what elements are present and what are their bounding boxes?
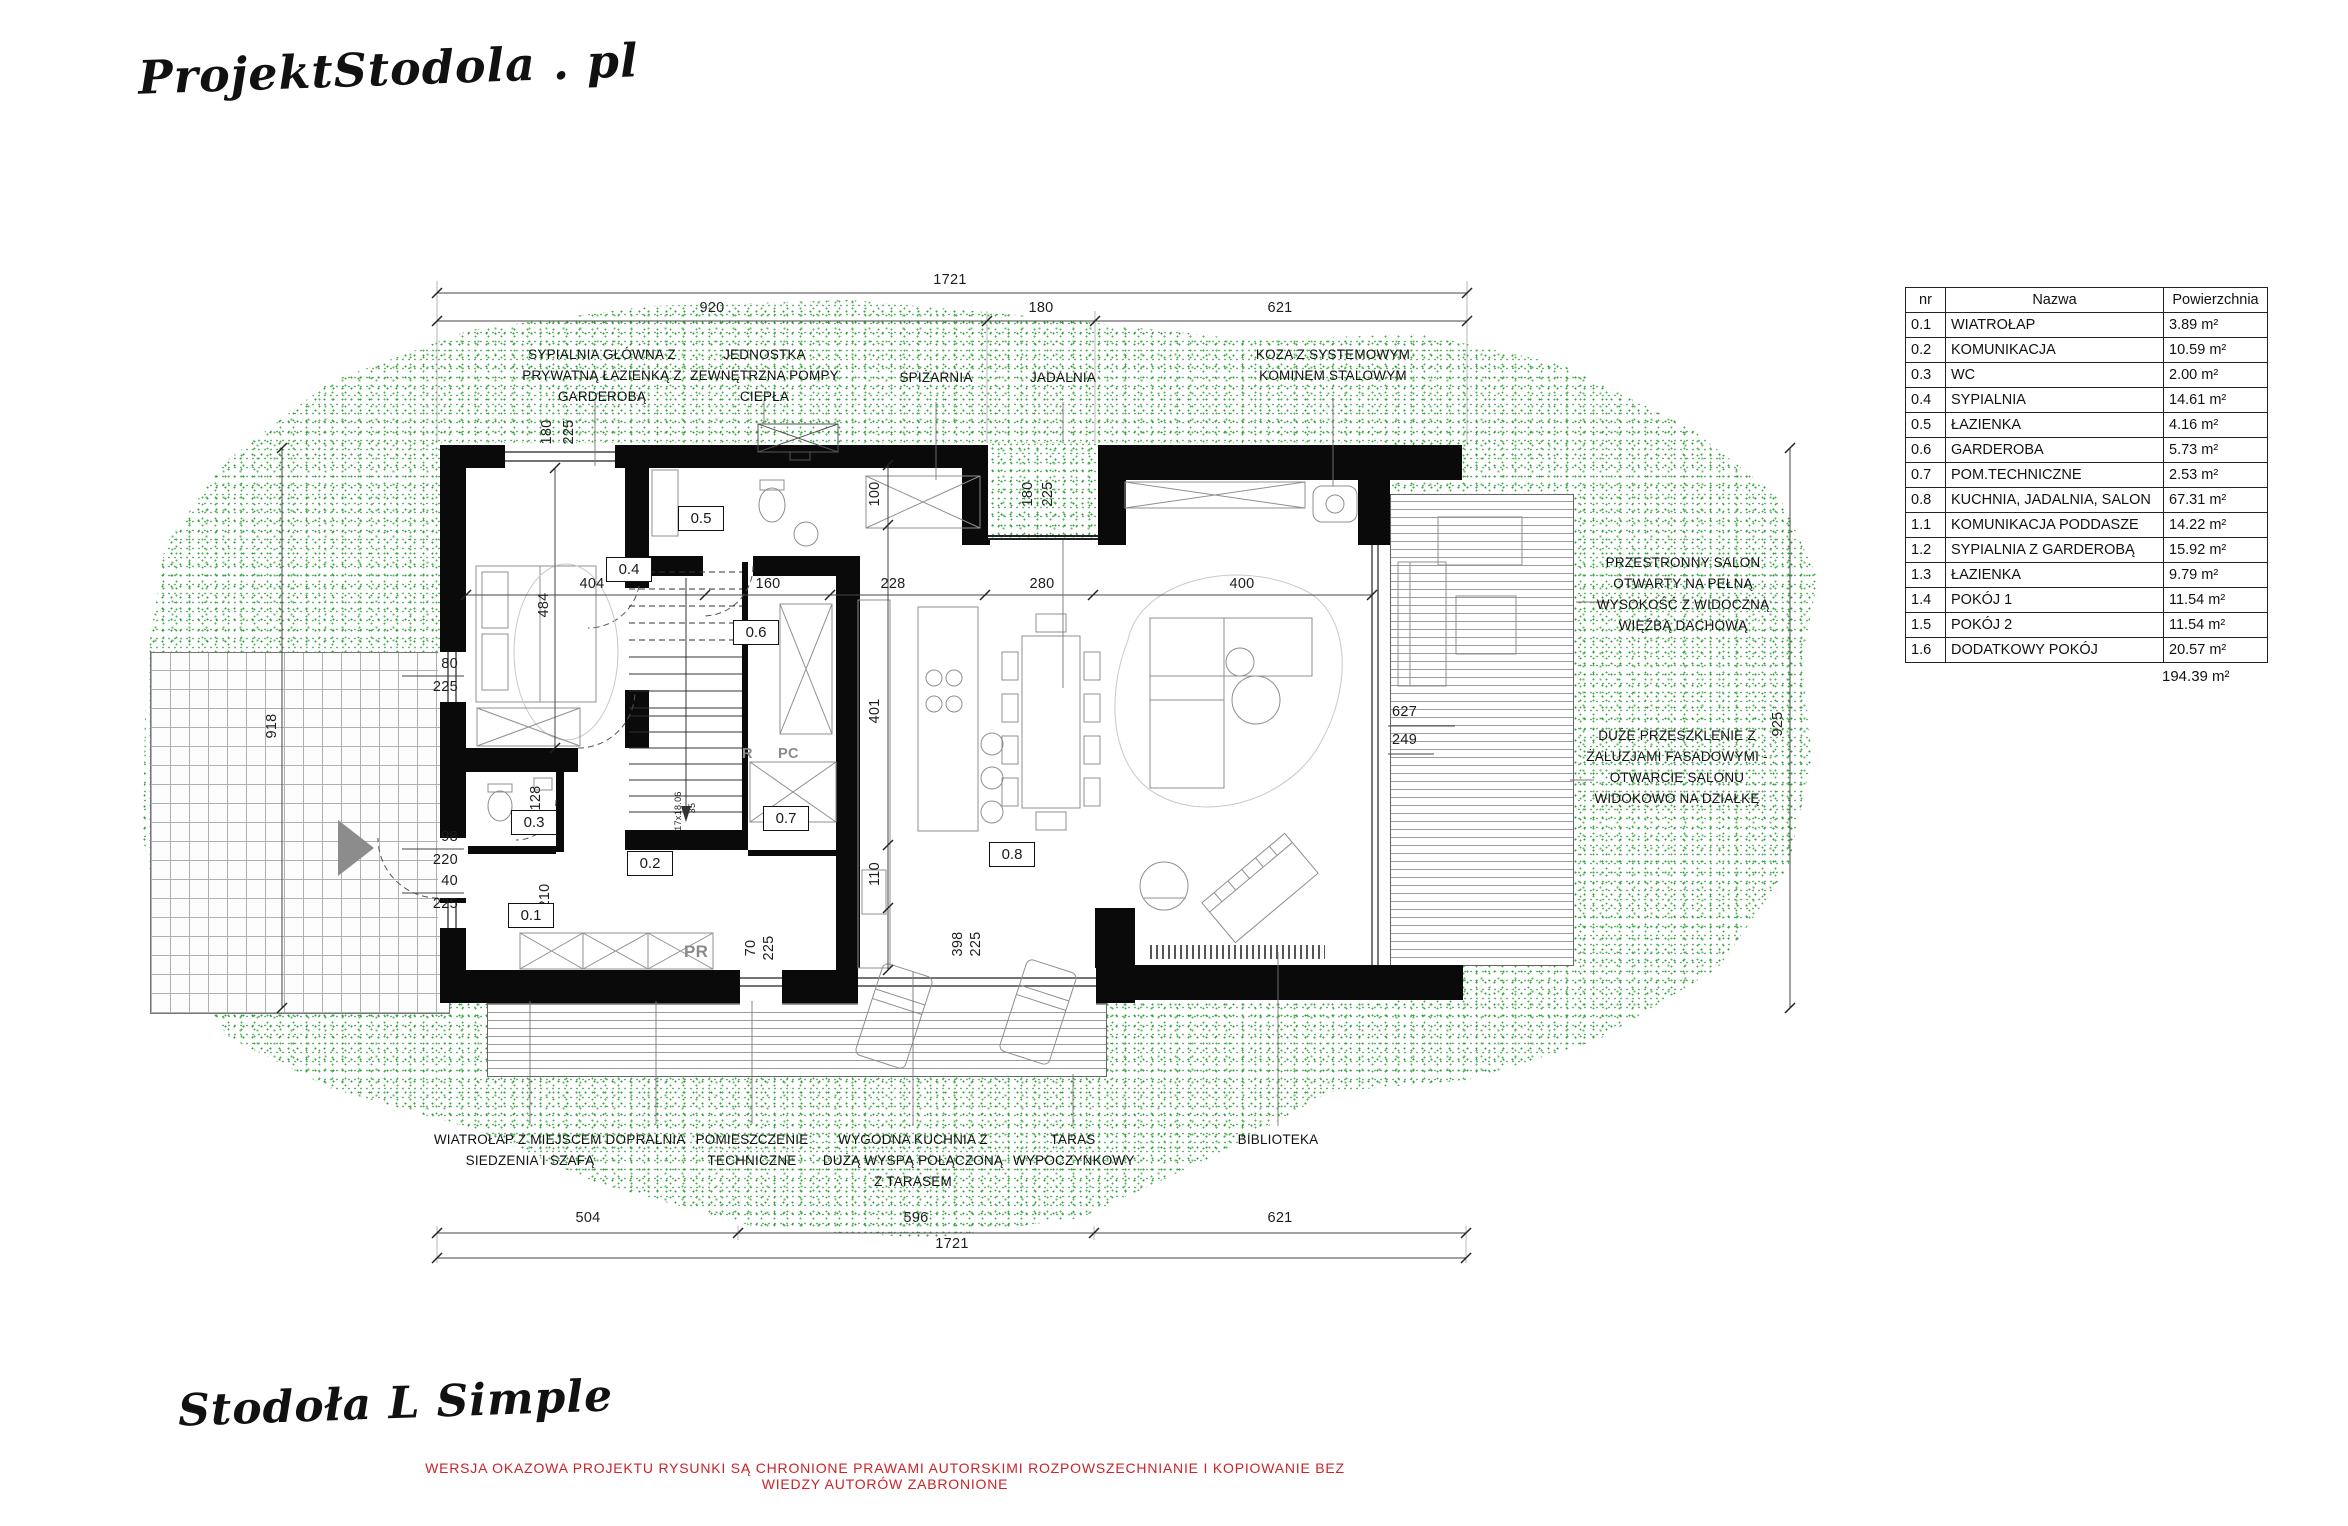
shelf-mark-pc: PC	[778, 746, 806, 762]
table-row: 0.4SYPIALNIA14.61 m²	[1906, 388, 2268, 413]
annotation-library: BIBLIOTEKA	[1218, 1130, 1338, 1151]
dim-bottom-seg-2: 596	[866, 1210, 966, 1226]
dim-win-top-h: 225	[561, 412, 577, 452]
table-header-name: Nazwa	[1946, 288, 2164, 313]
dim-win-niche-w: 180	[1020, 474, 1036, 514]
table-row: 1.3ŁAZIENKA9.79 m²	[1906, 563, 2268, 588]
room-area-table: nr Nazwa Powierzchnia 0.1WIATROŁAP3.89 m…	[1905, 287, 2268, 663]
dim-deck-level-a: 627	[1392, 704, 1452, 720]
room-label-0-5: 0.5	[678, 506, 724, 531]
dim-door-left-w: 98	[398, 829, 458, 845]
dim-top-seg-2: 180	[991, 300, 1091, 316]
annotation-dining: JADALNIA	[1013, 368, 1113, 389]
dim-win-bottom-b-h: 225	[968, 924, 984, 964]
shelf-mark-r: R	[742, 746, 762, 762]
dim-kitchen-h: 401	[867, 681, 883, 741]
plan-sheet: 1721 920 180 621 504 596 621 1721 918 92…	[0, 0, 2348, 1526]
annotation-heat-pump: JEDNOSTKA ZEWNĘTRZNA POMPY CIEPŁA	[682, 345, 847, 408]
dim-deck-level-b: 249	[1392, 732, 1452, 748]
total-area: 194.39 m²	[2162, 668, 2282, 685]
table-row: 0.8KUCHNIA, JADALNIA, SALON67.31 m²	[1906, 488, 2268, 513]
dim-bottom-seg-3: 621	[1230, 1210, 1330, 1226]
dim-win-bottom-a-h: 225	[761, 928, 777, 968]
room-label-0-1: 0.1	[508, 903, 554, 928]
dim-win-bottom-a-w: 70	[743, 928, 759, 968]
annotation-master-bedroom: SYPIALNIA GŁÓWNA Z PRYWATNĄ ŁAZIENKĄ Z G…	[490, 345, 714, 408]
dim-dining-w: 280	[992, 576, 1092, 592]
table-row: 1.4POKÓJ 111.54 m²	[1906, 588, 2268, 613]
washer-mark: PR	[684, 942, 718, 962]
dim-salon-w: 400	[1192, 576, 1292, 592]
dim-win-left-a-w: 80	[398, 656, 458, 672]
dim-hall-w: 160	[718, 576, 818, 592]
annotation-stove: KOZA Z SYSTEMOWYM KOMINEM STALOWYM	[1243, 345, 1423, 387]
stairs-width-note: 35	[687, 780, 697, 836]
table-header-area: Powierzchnia	[2164, 288, 2268, 313]
dim-kitchen-w: 228	[843, 576, 943, 592]
dim-door-left-h: 220	[398, 852, 458, 868]
room-label-0-7: 0.7	[763, 806, 809, 831]
table-row: 1.5POKÓJ 211.54 m²	[1906, 613, 2268, 638]
annotation-glazing: DUŻE PRZESZKLENIE Z ŻALUZJAMI FASADOWYMI…	[1586, 726, 1768, 810]
dim-top-seg-1: 920	[662, 300, 762, 316]
table-row: 0.2KOMUNIKACJA10.59 m²	[1906, 338, 2268, 363]
dim-island-h: 110	[867, 844, 883, 904]
table-row: 0.3WC2.00 m²	[1906, 363, 2268, 388]
dim-bottom-total: 1721	[902, 1236, 1002, 1252]
dim-win-left-a-h: 225	[398, 679, 458, 695]
room-label-0-2: 0.2	[627, 851, 673, 876]
annotation-kitchen: WYGODNA KUCHNIA Z DUŻĄ WYSPĄ POŁĄCZONĄ Z…	[820, 1130, 1006, 1193]
table-row: 1.6DODATKOWY POKÓJ20.57 m²	[1906, 638, 2268, 663]
dim-top-total: 1721	[900, 272, 1000, 288]
annotation-pantry: SPIŻARNIA	[886, 368, 986, 389]
annotation-salon: PRZESTRONNY SALON OTWARTY NA PEŁNĄ WYSOK…	[1593, 553, 1773, 637]
room-label-0-8: 0.8	[989, 842, 1035, 867]
room-label-0-4: 0.4	[606, 557, 652, 582]
dim-win-niche-h: 225	[1040, 474, 1056, 514]
dim-win-bottom-b-w: 398	[950, 924, 966, 964]
annotation-technical: POMIESZCZENIE TECHNICZNE	[682, 1130, 822, 1172]
dim-bedroom-h: 484	[536, 575, 552, 635]
copyright-disclaimer: WERSJA OKAZOWA PROJEKTU RYSUNKI SĄ CHRON…	[420, 1460, 1350, 1492]
dim-bottom-seg-1: 504	[538, 1210, 638, 1226]
table-row: 1.2SYPIALNIA Z GARDEROBĄ15.92 m²	[1906, 538, 2268, 563]
table-row: 0.6GARDEROBA5.73 m²	[1906, 438, 2268, 463]
table-header-nr: nr	[1906, 288, 1946, 313]
table-row: 1.1KOMUNIKACJA PODDASZE14.22 m²	[1906, 513, 2268, 538]
annotation-terrace: TARAS WYPOCZYNKOWY	[1013, 1130, 1133, 1172]
table-row: 0.7POM.TECHNICZNE2.53 m²	[1906, 463, 2268, 488]
labels-layer: 1721 920 180 621 504 596 621 1721 918 92…	[0, 0, 2348, 1526]
dim-win-left-c-w: 40	[398, 873, 458, 889]
dim-left-total: 918	[264, 696, 280, 756]
dim-pantry-h: 100	[867, 464, 883, 524]
dim-top-seg-3: 621	[1230, 300, 1330, 316]
room-label-0-3: 0.3	[511, 810, 557, 835]
stairs-note: 17x18.06	[673, 781, 683, 841]
dim-right-total: 925	[1770, 694, 1786, 754]
dim-win-top-w: 180	[539, 412, 555, 452]
table-row: 0.5ŁAZIENKA4.16 m²	[1906, 413, 2268, 438]
annotation-entry: WIATROŁAP Z MIEJSCEM DO SIEDZENIA I SZAF…	[430, 1130, 630, 1172]
room-label-0-6: 0.6	[733, 620, 779, 645]
table-row: 0.1WIATROŁAP3.89 m²	[1906, 313, 2268, 338]
dim-win-left-c-h: 225	[398, 896, 458, 912]
